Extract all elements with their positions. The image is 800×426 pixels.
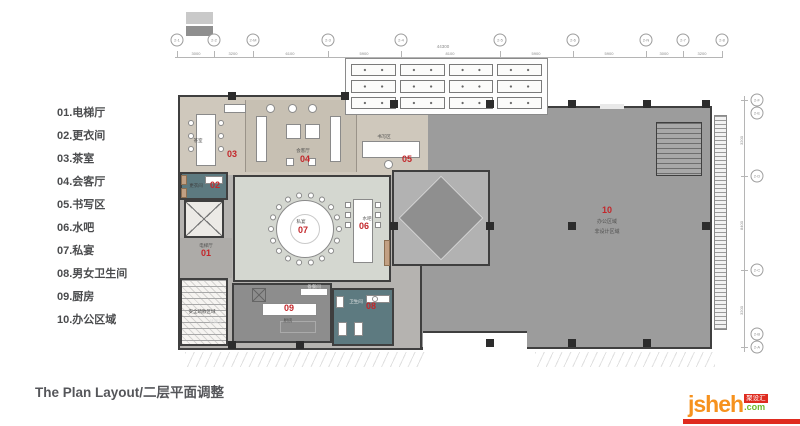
wall-legend-swatch xyxy=(186,12,213,24)
dim-tick xyxy=(683,51,684,58)
dim-value: 3200 xyxy=(739,136,744,145)
toilet xyxy=(354,322,363,336)
pantry-label: 备餐间 xyxy=(307,284,321,289)
desk xyxy=(400,64,445,76)
room-number: 05 xyxy=(402,155,412,164)
entry-door-gap xyxy=(600,104,624,109)
bar-counter xyxy=(353,199,373,263)
column xyxy=(568,339,576,347)
dim-value: 3000 xyxy=(192,51,201,56)
desk xyxy=(351,64,396,76)
dim-tick xyxy=(177,51,178,58)
axis-bubble: 2-M xyxy=(247,34,260,47)
chair xyxy=(336,226,342,232)
armchair xyxy=(266,104,275,113)
room-number: 08 xyxy=(366,302,376,311)
axis-bubble: 2-C xyxy=(751,264,764,277)
column xyxy=(390,222,398,230)
room-number: 07 xyxy=(298,226,308,235)
room-number: 03 xyxy=(227,150,237,159)
room-number: 01 xyxy=(201,249,211,258)
axis-bubble: 2-A xyxy=(751,341,764,354)
desk xyxy=(449,64,494,76)
armchair xyxy=(288,104,297,113)
facade-notch xyxy=(423,331,527,350)
column xyxy=(643,100,651,108)
room-name: 私宴 xyxy=(297,219,306,224)
dim-tick xyxy=(741,270,748,271)
axis-bubble: 2-4 xyxy=(395,34,408,47)
page-title: The Plan Layout/二层平面调整 xyxy=(35,381,224,401)
dim-tick xyxy=(722,51,723,58)
stool xyxy=(345,212,351,218)
toilet xyxy=(336,296,344,308)
projection-hatch xyxy=(535,352,715,367)
logo-red-bar xyxy=(683,419,800,424)
dim-tick xyxy=(741,347,748,348)
room-name: 更衣间 xyxy=(189,183,203,188)
column xyxy=(643,339,651,347)
dim-value: 5900 xyxy=(605,51,614,56)
dim-value: 3200 xyxy=(229,51,238,56)
room-name: 书写区 xyxy=(377,134,391,139)
axis-bubble: 2-8 xyxy=(716,34,729,47)
terrace-desk-area xyxy=(345,58,548,115)
sofa xyxy=(256,116,267,162)
dim-value: 8100 xyxy=(446,51,455,56)
desk xyxy=(400,97,445,109)
armchair xyxy=(308,104,317,113)
stool xyxy=(375,202,381,208)
axis-bubble: 2-E xyxy=(751,107,764,120)
axis-bubble: 2-D xyxy=(751,170,764,183)
stool xyxy=(286,158,294,166)
room-number: 06 xyxy=(359,222,369,231)
coffee-table xyxy=(286,124,301,139)
storage-label: 储藏室 xyxy=(209,319,223,324)
axis-bubble: 2-F xyxy=(751,94,764,107)
column xyxy=(296,341,304,349)
chair xyxy=(384,160,393,169)
jsheh-logo: jsheh 聚设汇 .com xyxy=(688,394,768,414)
dim-value: 5900 xyxy=(532,51,541,56)
column xyxy=(228,341,236,349)
dim-value: 6100 xyxy=(286,51,295,56)
room-number: 10 xyxy=(602,206,612,215)
column xyxy=(486,339,494,347)
room-number: 02 xyxy=(210,181,220,190)
stool xyxy=(375,212,381,218)
room-number: 04 xyxy=(300,155,310,164)
room-name: 卫生间 xyxy=(349,299,363,304)
column xyxy=(341,92,349,100)
dim-value: 8400 xyxy=(739,221,744,230)
stool xyxy=(345,222,351,228)
dim-tick xyxy=(741,176,748,177)
axis-bubble: 2-1 xyxy=(171,34,184,47)
axis-bubble: 2-6 xyxy=(567,34,580,47)
pantry-counter xyxy=(300,288,328,296)
column xyxy=(568,100,576,108)
axis-bubble: 2-7 xyxy=(677,34,690,47)
column xyxy=(702,222,710,230)
chair xyxy=(188,146,194,152)
slide-canvas: 01.电梯厅 02.更衣间 03.茶室 04.会客厅 05.书写区 06.水吧 … xyxy=(0,0,800,426)
dim-value: 3200 xyxy=(698,51,707,56)
stool xyxy=(345,202,351,208)
axis-bubble: 2-5 xyxy=(494,34,507,47)
stair-note-label: 安全疏散区域 xyxy=(189,309,216,314)
dim-value: 3000 xyxy=(660,51,669,56)
cabinet xyxy=(181,188,187,198)
logo-wordmark: jsheh xyxy=(688,394,743,414)
stool xyxy=(375,222,381,228)
curtain-wall-louver xyxy=(714,115,727,330)
axis-bubble: 2-N xyxy=(640,34,653,47)
column xyxy=(486,100,494,108)
atrium-skylight xyxy=(392,170,490,266)
skylight-diamond xyxy=(399,176,484,261)
column xyxy=(390,100,398,108)
column xyxy=(702,100,710,108)
dim-value: 5900 xyxy=(360,51,369,56)
dim-value: 3200 xyxy=(739,306,744,315)
desk xyxy=(400,80,445,92)
axis-bubble: 2-3 xyxy=(322,34,335,47)
column xyxy=(568,222,576,230)
chair xyxy=(218,146,224,152)
dim-tick xyxy=(646,51,647,58)
stair-northeast xyxy=(656,122,702,176)
floor-plan: 44300 2-1 2-2 2-M 2-3 2-4 2-5 2-6 2-N 2-… xyxy=(0,0,800,426)
desk xyxy=(351,80,396,92)
dim-tick xyxy=(401,51,402,58)
logo-tld: .com xyxy=(744,403,765,412)
dim-tick xyxy=(328,51,329,58)
desk xyxy=(497,97,542,109)
dim-tick xyxy=(741,100,748,101)
desk xyxy=(497,80,542,92)
room-number: 09 xyxy=(284,304,294,313)
room-name: 办公区域 xyxy=(597,220,617,225)
desk xyxy=(449,80,494,92)
room-subname: 非设计区域 xyxy=(594,230,619,235)
axis-bubble: 2-B xyxy=(751,328,764,341)
cabinet xyxy=(181,175,187,185)
column xyxy=(228,92,236,100)
sideboard xyxy=(224,104,246,113)
chair xyxy=(218,133,224,139)
chair xyxy=(268,226,274,232)
elevator-shaft xyxy=(184,200,224,238)
column xyxy=(486,222,494,230)
toilet xyxy=(338,322,347,336)
overall-dimension: 44300 xyxy=(437,44,450,49)
room-name: 会客厅 xyxy=(296,148,310,153)
cabinet xyxy=(384,240,390,266)
dim-tick xyxy=(253,51,254,58)
chair xyxy=(218,120,224,126)
room-name: 厨房 xyxy=(284,318,293,323)
projection-hatch xyxy=(185,352,425,367)
dim-tick xyxy=(500,51,501,58)
room-name: 茶室 xyxy=(194,138,203,143)
sofa xyxy=(330,116,341,162)
dim-tick xyxy=(214,51,215,58)
chair xyxy=(188,120,194,126)
axis-bubble: 2-2 xyxy=(208,34,221,47)
desk xyxy=(497,64,542,76)
dim-tick xyxy=(573,51,574,58)
coffee-table xyxy=(305,124,320,139)
service-shaft xyxy=(252,288,266,302)
right-dimension-line xyxy=(744,96,745,352)
